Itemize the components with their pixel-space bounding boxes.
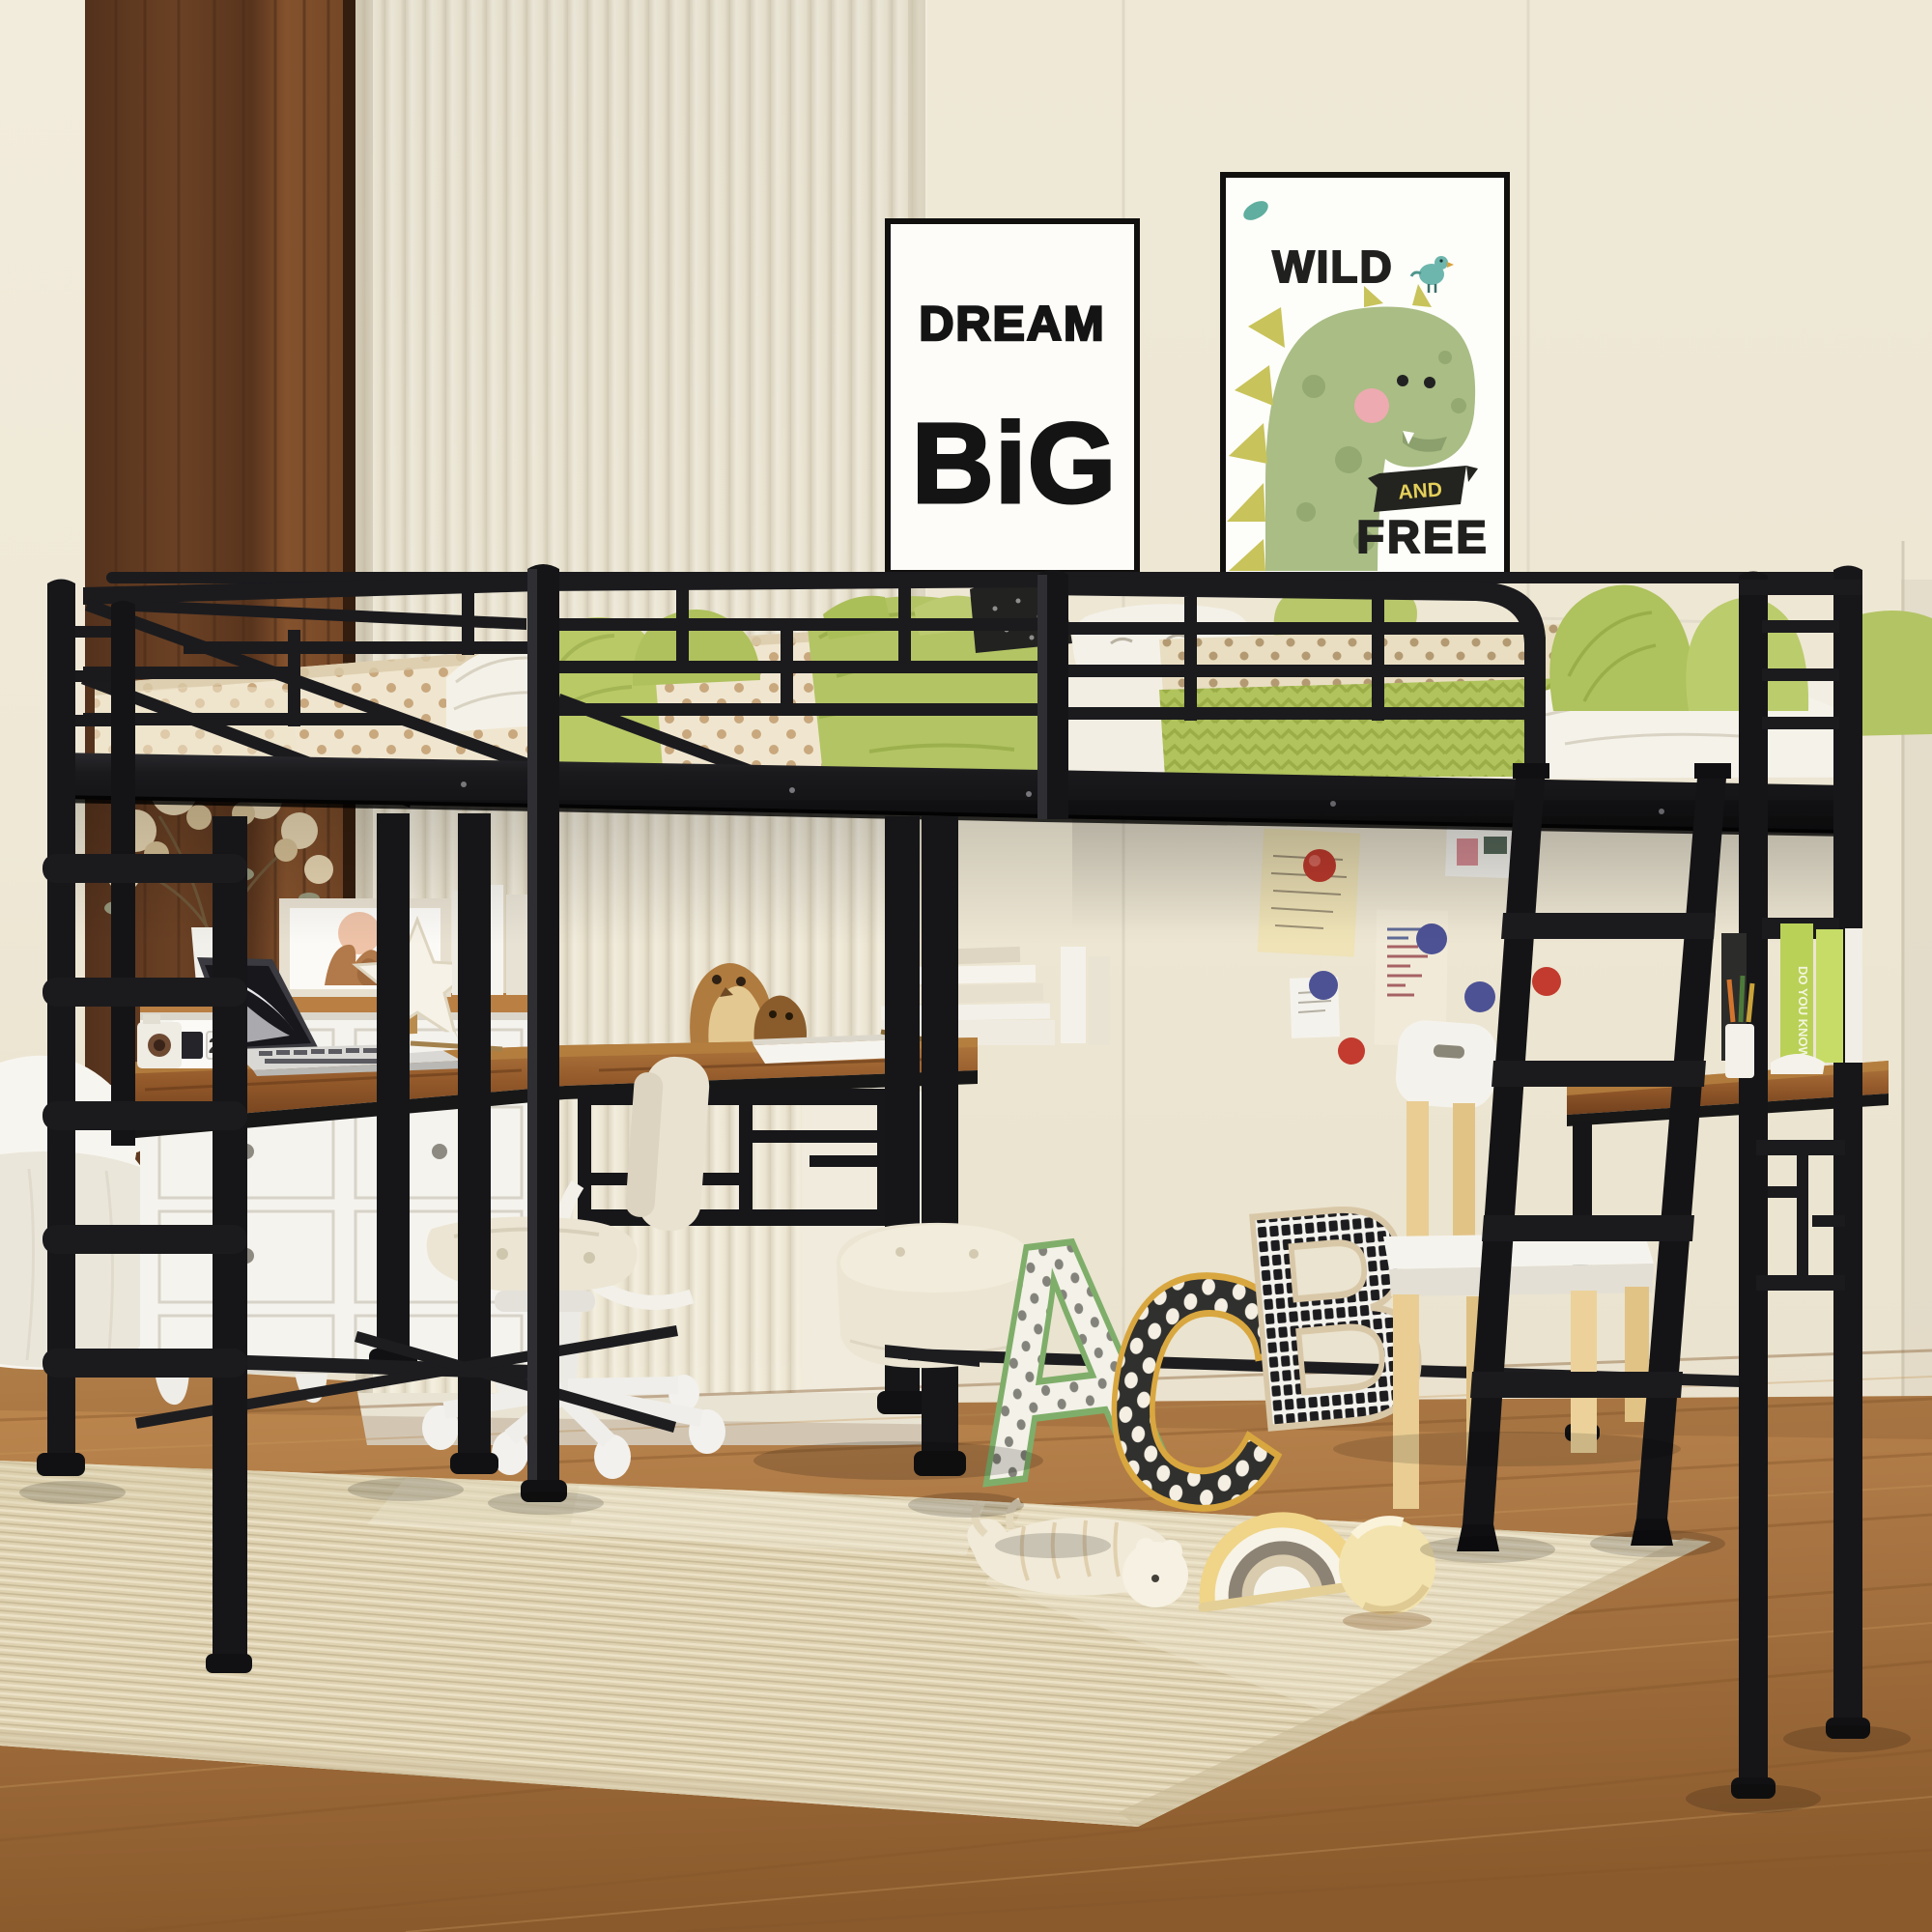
svg-text:FREE: FREE xyxy=(1356,511,1489,562)
svg-text:DREAM: DREAM xyxy=(919,297,1105,351)
svg-text:WILD: WILD xyxy=(1272,241,1394,292)
svg-text:AND: AND xyxy=(1398,478,1443,503)
svg-text:DO YOU KNOW: DO YOU KNOW xyxy=(1796,966,1810,1060)
svg-text:BiG: BiG xyxy=(912,400,1118,527)
